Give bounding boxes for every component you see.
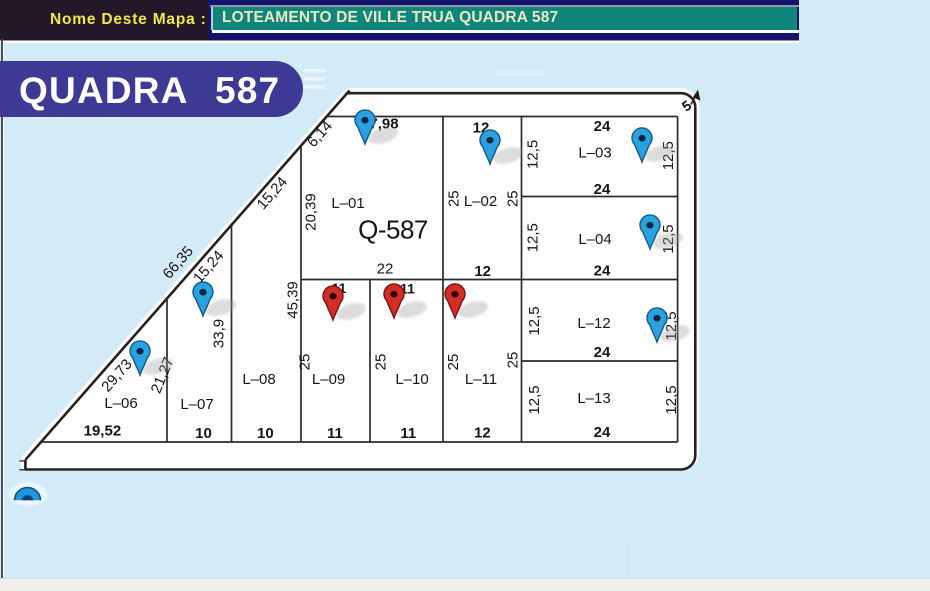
svg-text:24: 24	[594, 181, 611, 198]
svg-text:12: 12	[474, 425, 491, 442]
svg-text:12,5: 12,5	[526, 385, 543, 414]
svg-text:587: 587	[215, 70, 280, 111]
svg-text:25: 25	[373, 354, 390, 371]
svg-text:24: 24	[594, 344, 611, 361]
svg-text:L–04: L–04	[578, 231, 611, 248]
svg-text:25: 25	[504, 352, 521, 369]
svg-text:10: 10	[257, 425, 274, 442]
svg-text:25: 25	[445, 190, 462, 207]
svg-text:L–08: L–08	[242, 371, 275, 388]
svg-text:Q-587: Q-587	[358, 215, 428, 245]
svg-text:12,5: 12,5	[663, 385, 680, 414]
svg-text:12,5: 12,5	[526, 306, 543, 335]
svg-text:L–02: L–02	[464, 193, 497, 210]
svg-text:24: 24	[594, 424, 611, 441]
svg-text:12,5: 12,5	[524, 140, 541, 169]
svg-text:11: 11	[327, 425, 343, 442]
svg-text:12: 12	[474, 263, 491, 280]
svg-text:10: 10	[195, 425, 212, 442]
svg-text:L–01: L–01	[331, 195, 364, 212]
svg-text:19,52: 19,52	[84, 423, 122, 440]
svg-text:25: 25	[296, 354, 313, 371]
svg-text:L–10: L–10	[395, 371, 428, 388]
svg-text:22: 22	[377, 261, 394, 278]
svg-text:L–11: L–11	[465, 371, 497, 388]
svg-text:L–06: L–06	[104, 395, 137, 412]
svg-text:L–03: L–03	[578, 145, 611, 162]
svg-text:24: 24	[594, 118, 611, 135]
svg-text:QUADRA: QUADRA	[19, 70, 189, 111]
svg-text:L–12: L–12	[577, 315, 610, 332]
svg-text:L–09: L–09	[312, 371, 345, 388]
svg-text:25: 25	[504, 190, 521, 207]
svg-text:20,39: 20,39	[303, 193, 320, 231]
svg-text:L–07: L–07	[180, 396, 213, 413]
svg-text:25: 25	[445, 354, 462, 371]
svg-text:33,9: 33,9	[210, 319, 227, 348]
svg-text:11: 11	[400, 425, 416, 442]
svg-text:24: 24	[594, 263, 611, 280]
svg-text:L–13: L–13	[577, 390, 610, 407]
svg-text:45,39: 45,39	[284, 281, 301, 319]
svg-text:12,5: 12,5	[524, 223, 541, 252]
